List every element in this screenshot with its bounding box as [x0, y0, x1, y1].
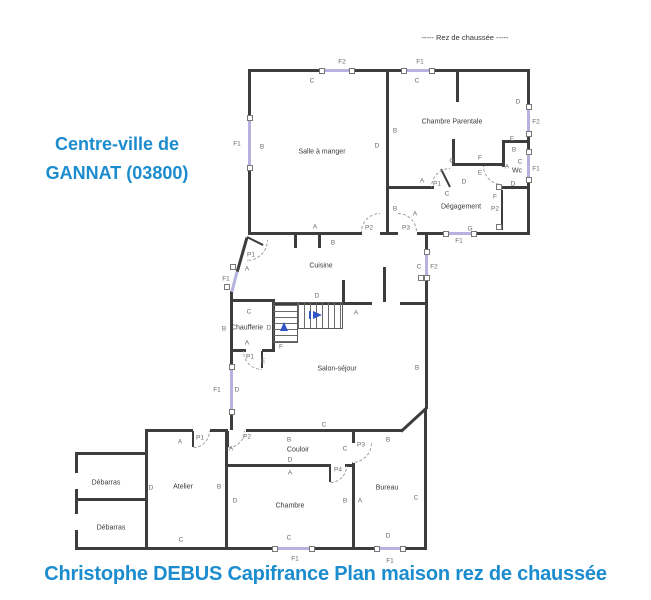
- room-label: Salle à manger: [298, 149, 345, 156]
- window: [322, 69, 352, 72]
- letter-tag: C: [518, 159, 523, 166]
- letter-tag: C: [310, 78, 315, 85]
- wall: [75, 452, 78, 473]
- door-arc: [483, 166, 502, 185]
- room-label: Chaufferie: [231, 325, 263, 332]
- letter-tag: B: [287, 437, 291, 444]
- letter-tag: P1: [433, 181, 441, 188]
- window-joint: [400, 546, 406, 552]
- letter-tag: F: [478, 155, 482, 162]
- wall: [352, 463, 355, 550]
- letter-tag: A: [229, 446, 233, 453]
- letter-tag: C: [179, 537, 184, 544]
- letter-tag: P2: [491, 206, 499, 213]
- letter-tag: C: [415, 78, 420, 85]
- wall: [248, 232, 362, 235]
- wall: [456, 69, 459, 102]
- letter-tag: C: [417, 264, 422, 271]
- wall: [232, 299, 275, 302]
- wall: [225, 464, 331, 467]
- letter-tag: F2: [430, 264, 438, 271]
- stair-direction-arrow: [280, 322, 288, 331]
- wall: [425, 278, 428, 409]
- letter-tag: P1: [247, 252, 255, 259]
- wall: [342, 280, 345, 302]
- letter-tag: F: [493, 194, 497, 201]
- letter-tag: A: [288, 470, 292, 477]
- room-label: Chambre: [276, 503, 305, 510]
- letter-tag: A: [313, 224, 317, 231]
- window: [527, 107, 530, 134]
- wall: [383, 267, 386, 302]
- stair-arrow-stem: [309, 311, 311, 319]
- window-joint: [309, 546, 315, 552]
- wall-joint: [224, 284, 230, 290]
- room-label: Salon-séjour: [317, 366, 356, 373]
- window: [248, 118, 251, 168]
- window-joint: [229, 409, 235, 415]
- letter-tag: C: [247, 309, 252, 316]
- letter-tag: D: [516, 99, 521, 106]
- window-joint: [424, 249, 430, 255]
- wall: [75, 498, 148, 501]
- room-label: Chambre Parentale: [422, 119, 483, 126]
- letter-tag: D: [149, 485, 154, 492]
- wall: [75, 530, 78, 550]
- room-label: Cuisine: [309, 263, 332, 270]
- window: [275, 547, 312, 550]
- window-joint: [349, 68, 355, 74]
- letter-tag: D: [386, 533, 391, 540]
- window: [527, 152, 530, 180]
- wall: [246, 429, 402, 432]
- letter-tag: P4: [334, 467, 342, 474]
- wall: [294, 235, 297, 248]
- letter-tag: A: [245, 266, 249, 273]
- letter-tag: D: [511, 181, 516, 188]
- letter-tag: G: [449, 158, 454, 165]
- letter-tag: D: [462, 179, 467, 186]
- wall-joint: [230, 264, 236, 270]
- letter-tag: D: [233, 498, 238, 505]
- letter-tag: A: [420, 178, 424, 185]
- letter-tag: A: [354, 310, 358, 317]
- letter-tag: P3: [402, 225, 410, 232]
- window-joint: [229, 364, 235, 370]
- letter-tag: B: [386, 437, 390, 444]
- wall: [424, 409, 427, 550]
- window: [230, 367, 233, 412]
- letter-tag: F1: [455, 238, 463, 245]
- room-label: Wc: [512, 168, 522, 175]
- letter-tag: A: [245, 340, 249, 347]
- wall: [145, 429, 193, 432]
- wall: [145, 429, 148, 550]
- letter-tag: C: [322, 422, 327, 429]
- window-joint: [424, 275, 430, 281]
- room-label: Bureau: [376, 485, 399, 492]
- letter-tag: P2: [365, 225, 373, 232]
- room-label: Débarras: [97, 525, 126, 532]
- wall: [318, 235, 321, 248]
- letter-tag: C: [414, 495, 419, 502]
- wall: [75, 452, 148, 455]
- room-label: Atelier: [173, 484, 193, 491]
- window-joint: [526, 131, 532, 137]
- letter-tag: G: [467, 226, 472, 233]
- wall: [386, 186, 434, 189]
- wall: [400, 407, 427, 432]
- wall: [386, 69, 389, 235]
- letter-tag: B: [222, 326, 226, 333]
- wall: [400, 302, 427, 305]
- window-joint: [247, 115, 253, 121]
- window-joint: [319, 68, 325, 74]
- letter-tag: B: [393, 128, 397, 135]
- wall: [380, 232, 398, 235]
- letter-tag: B: [331, 240, 335, 247]
- room-label: Dégagement: [441, 204, 481, 211]
- letter-tag: P1: [196, 435, 204, 442]
- letter-tag: C: [445, 191, 450, 198]
- footer-caption: Christophe DEBUS Capifrance Plan maison …: [0, 563, 651, 586]
- wall: [352, 429, 355, 443]
- wall: [262, 349, 275, 352]
- floor-plan-drawing: Salle à mangerChambre ParentaleWcDégagem…: [0, 0, 651, 600]
- letter-tag: P2: [243, 434, 251, 441]
- letter-tag: P1: [246, 354, 254, 361]
- wall: [75, 489, 78, 514]
- letter-tag: F2: [532, 119, 540, 126]
- letter-tag: B: [260, 144, 264, 151]
- letter-tag: B: [217, 484, 221, 491]
- letter-tag: E: [261, 358, 265, 365]
- letter-tag: D: [375, 143, 380, 150]
- letter-tag: A: [505, 164, 509, 171]
- window-joint: [429, 68, 435, 74]
- letter-tag: P3: [357, 442, 365, 449]
- letter-tag: B: [343, 498, 347, 505]
- window-joint: [526, 104, 532, 110]
- letter-tag: B: [415, 365, 419, 372]
- window-joint: [401, 68, 407, 74]
- window-joint: [247, 165, 253, 171]
- letter-tag: A: [178, 439, 182, 446]
- letter-tag: F1: [222, 276, 230, 283]
- letter-tag: E: [510, 136, 514, 143]
- letter-tag: C: [343, 446, 348, 453]
- letter-tag: D: [267, 325, 272, 332]
- window-joint: [443, 231, 449, 237]
- letter-tag: D: [288, 457, 293, 464]
- letter-tag: A: [358, 498, 362, 505]
- letter-tag: F1: [213, 387, 221, 394]
- letter-tag: B: [393, 206, 397, 213]
- window-joint: [526, 177, 532, 183]
- window-joint: [526, 149, 532, 155]
- letter-tag: D: [235, 387, 240, 394]
- letter-tag: E: [478, 170, 482, 177]
- window: [231, 271, 239, 292]
- window: [404, 69, 432, 72]
- window-joint: [272, 546, 278, 552]
- letter-tag: F: [279, 344, 283, 351]
- wall: [502, 140, 528, 143]
- letter-tag: F1: [233, 141, 241, 148]
- letter-tag: C: [287, 535, 292, 542]
- letter-tag: D: [315, 293, 320, 300]
- letter-tag: A: [413, 211, 417, 218]
- room-label: Couloir: [287, 447, 309, 454]
- letter-tag: F1: [291, 556, 299, 563]
- letter-tag: B: [512, 147, 516, 154]
- window-joint: [374, 546, 380, 552]
- stair-direction-arrow: [313, 311, 322, 319]
- letter-tag: F1: [416, 59, 424, 66]
- letter-tag: F2: [338, 59, 346, 66]
- letter-tag: F1: [532, 166, 540, 173]
- wall: [248, 69, 530, 72]
- wall-joint: [418, 275, 424, 281]
- room-label: Débarras: [92, 480, 121, 487]
- wall-joint: [496, 224, 502, 230]
- floor-plan-page: ----- Rez de chaussée ----- Centre-ville…: [0, 0, 651, 600]
